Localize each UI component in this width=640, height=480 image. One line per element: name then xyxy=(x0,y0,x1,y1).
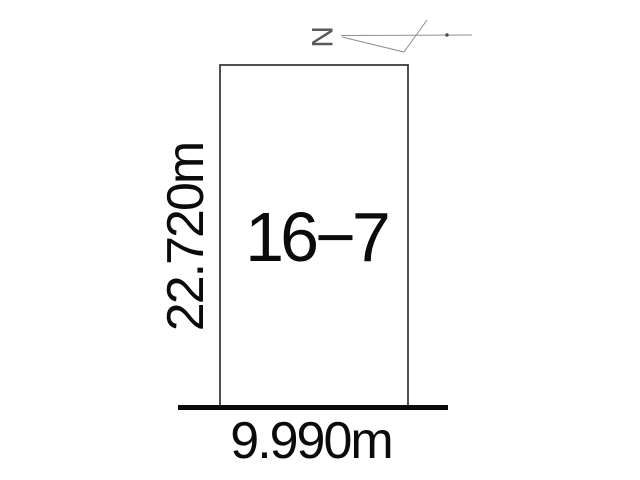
lot-number-label: 16−7 xyxy=(245,202,387,272)
land-plot-diagram: N 16−7 22.720m 9.990m xyxy=(0,0,640,480)
north-arrow-shaft-line xyxy=(341,35,472,36)
north-arrow-tick-dot xyxy=(445,33,448,36)
north-arrow: N xyxy=(305,20,472,52)
north-arrow-head xyxy=(342,20,427,52)
frontage-dimension-label: 9.990m xyxy=(230,415,391,467)
depth-dimension-label: 22.720m xyxy=(160,143,212,331)
north-label: N xyxy=(305,26,338,48)
